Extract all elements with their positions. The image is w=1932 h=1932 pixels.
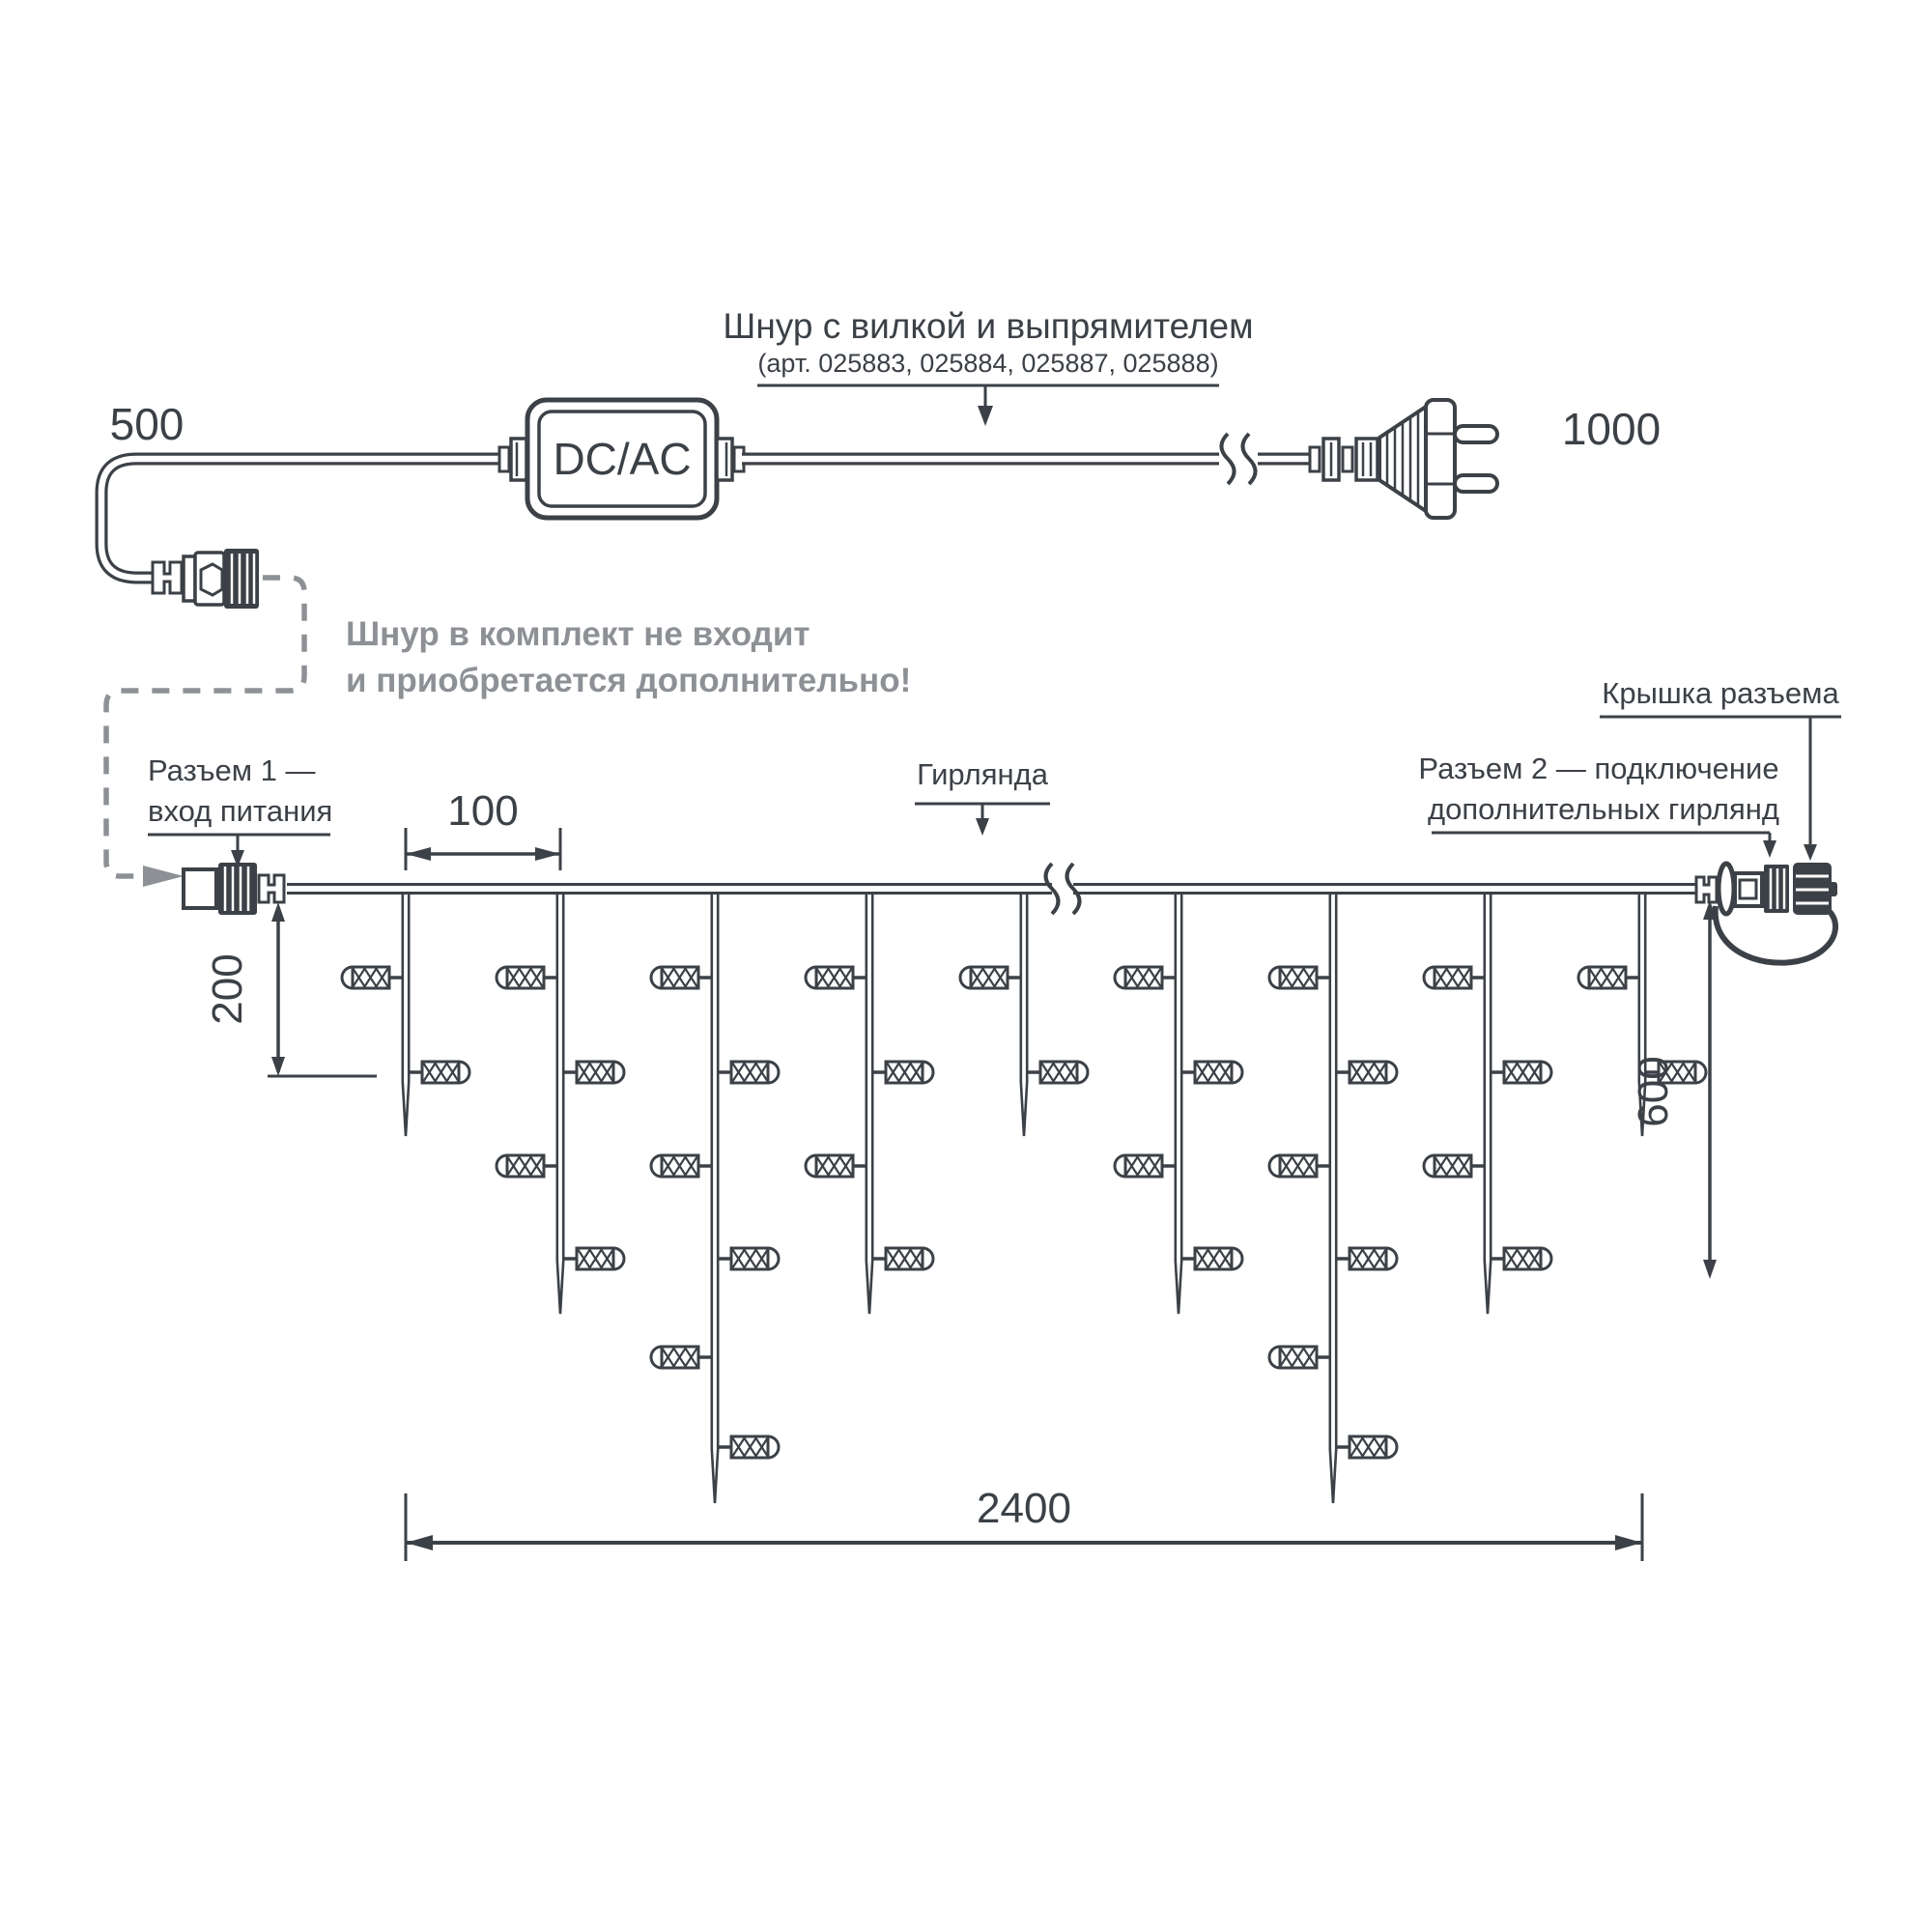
- light-bulb: [408, 1062, 469, 1083]
- light-bulb: [1180, 1248, 1242, 1269]
- dim-100-label: 100: [447, 787, 518, 835]
- dim-2400-label: 2400: [977, 1485, 1071, 1532]
- garland-label: Гирлянда: [917, 757, 1049, 791]
- arrow-down-icon: [978, 406, 993, 426]
- garland-callout: Гирлянда: [915, 757, 1050, 836]
- connector1-icon: [184, 863, 284, 915]
- light-bulb: [1335, 1436, 1397, 1458]
- connector1-label-1: Разъем 1 —: [148, 753, 315, 787]
- light-bulb: [1269, 1347, 1331, 1368]
- connector-cap-icon: [1793, 863, 1837, 915]
- arrow-down-icon: [1703, 1260, 1717, 1279]
- garland-drop-medium: [806, 895, 933, 1314]
- diagram-canvas: 500 DC/AC 1000: [0, 0, 1932, 1932]
- light-bulb: [1115, 1155, 1177, 1177]
- light-bulb: [651, 1347, 713, 1368]
- arrow-down-icon: [1804, 844, 1817, 861]
- garland-break-icon: [1046, 864, 1080, 914]
- garland-drop-medium: [497, 895, 624, 1314]
- arrow-down-icon: [976, 818, 989, 836]
- light-bulb: [717, 1062, 779, 1083]
- dim-100: 100: [406, 787, 560, 870]
- arrow-left-icon: [406, 847, 431, 861]
- not-included-text-1: Шнур в комплект не входит: [346, 615, 810, 653]
- light-bulb: [562, 1062, 624, 1083]
- light-bulb: [497, 967, 558, 988]
- light-bulb: [1269, 967, 1331, 988]
- arrow-up-icon: [271, 902, 285, 922]
- garland-drop-medium: [1115, 895, 1242, 1314]
- power-cord-assembly: 500 DC/AC 1000: [101, 399, 1661, 609]
- dcac-converter: DC/AC: [499, 400, 744, 518]
- not-included-text-2: и приобретается дополнительно!: [346, 662, 911, 699]
- dashed-connection-path: [106, 578, 304, 876]
- title-callout: Шнур с вилкой и выпрямителем (арт. 02588…: [723, 306, 1253, 426]
- dim-500-label: 500: [110, 399, 185, 449]
- light-bulb: [1269, 1155, 1331, 1177]
- light-bulb: [806, 1155, 867, 1177]
- title-line2: (арт. 025883, 025884, 025887, 025888): [757, 349, 1218, 378]
- dcac-label: DC/AC: [553, 434, 691, 484]
- light-bulb: [960, 967, 1022, 988]
- arrow-down-icon: [1763, 840, 1776, 858]
- dim-1000-label: 1000: [1562, 404, 1661, 454]
- light-bulb: [1490, 1062, 1551, 1083]
- light-bulb: [562, 1248, 624, 1269]
- connector2-label-2: дополнительных гирлянд: [1428, 792, 1779, 826]
- light-bulb: [497, 1155, 558, 1177]
- light-bulb: [1026, 1062, 1088, 1083]
- light-bulb: [1424, 1155, 1486, 1177]
- garland-assembly: [184, 863, 1837, 1503]
- connector1-label-2: вход питания: [148, 794, 332, 828]
- gray-arrow-icon: [143, 866, 184, 887]
- light-bulb: [871, 1248, 933, 1269]
- dim-600-label: 600: [1630, 1056, 1677, 1126]
- dim-600: 600: [1630, 900, 1717, 1279]
- light-bulb: [717, 1248, 779, 1269]
- light-bulb: [871, 1062, 933, 1083]
- dim-200-label: 200: [204, 953, 251, 1024]
- garland-drop-long: [1269, 895, 1397, 1503]
- light-bulb: [651, 1155, 713, 1177]
- cord-connector-icon: [153, 549, 259, 609]
- garland-drops: [342, 895, 1706, 1503]
- cap-label: Крышка разъема: [1602, 676, 1839, 710]
- light-bulb: [1578, 967, 1640, 988]
- garland-drop-medium: [1424, 895, 1551, 1314]
- light-bulb: [806, 967, 867, 988]
- connector1-callout: Разъем 1 — вход питания: [148, 753, 332, 867]
- light-bulb: [651, 967, 713, 988]
- garland-drop-short: [960, 895, 1088, 1136]
- arrow-down-icon: [271, 1057, 285, 1076]
- arrow-left-icon: [406, 1535, 433, 1550]
- arrow-right-icon: [535, 847, 560, 861]
- light-bulb: [1115, 967, 1177, 988]
- cord-break-icon: [1222, 434, 1256, 484]
- garland-dimension-diagram: 500 DC/AC 1000: [0, 0, 1932, 1932]
- not-included-note: Шнур в комплект не входит и приобретаетс…: [106, 578, 911, 887]
- light-bulb: [342, 967, 404, 988]
- cord-left: [101, 459, 507, 578]
- connector2-label-1: Разъем 2 — подключение: [1418, 752, 1778, 785]
- light-bulb: [1424, 967, 1486, 988]
- connector2-callout: Разъем 2 — подключение дополнительных ги…: [1418, 752, 1779, 858]
- light-bulb: [717, 1436, 779, 1458]
- dim-2400: 2400: [406, 1485, 1642, 1561]
- light-bulb: [1335, 1062, 1397, 1083]
- light-bulb: [1180, 1062, 1242, 1083]
- garland-drop-short: [342, 895, 469, 1136]
- title-line1: Шнур с вилкой и выпрямителем: [723, 306, 1253, 346]
- light-bulb: [1335, 1248, 1397, 1269]
- arrow-right-icon: [1615, 1535, 1642, 1550]
- garland-drop-long: [651, 895, 779, 1503]
- light-bulb: [1490, 1248, 1551, 1269]
- mains-plug-icon: [1310, 400, 1497, 518]
